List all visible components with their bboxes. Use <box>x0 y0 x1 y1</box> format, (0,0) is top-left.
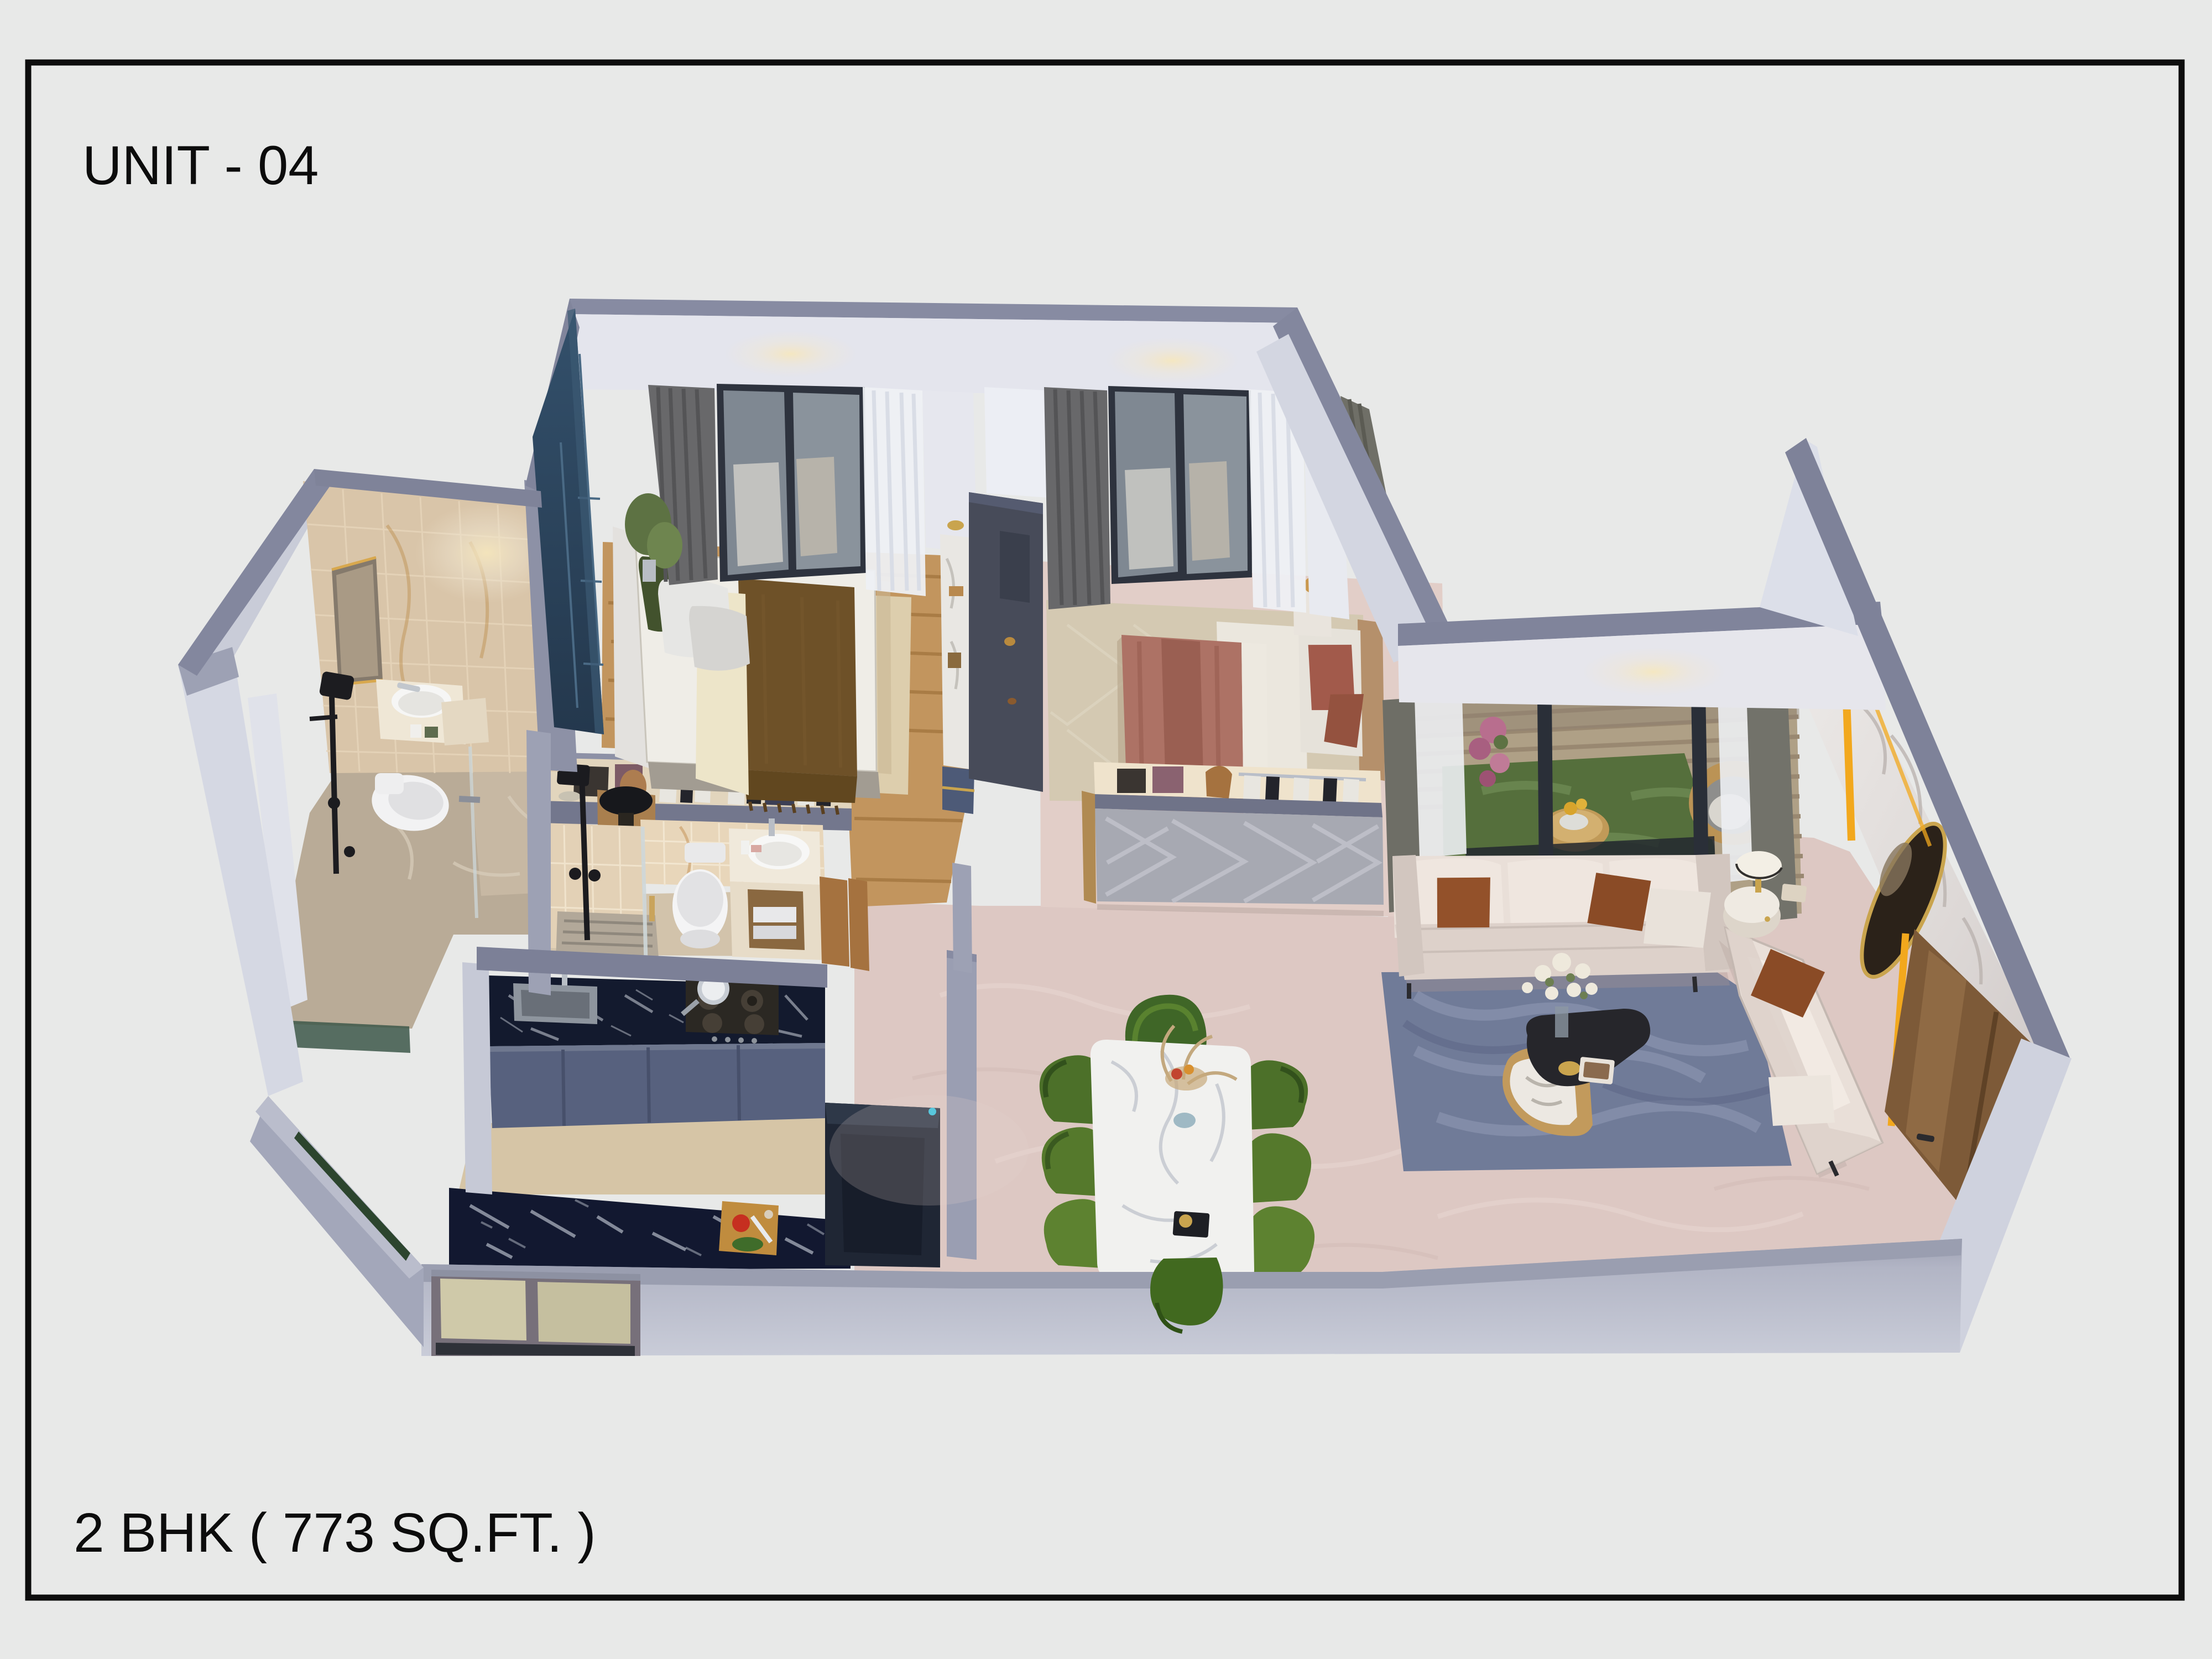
svg-text:UNIT - 04: UNIT - 04 <box>82 134 319 196</box>
svg-text:2 BHK ( 773 SQ.FT. ): 2 BHK ( 773 SQ.FT. ) <box>74 1502 596 1564</box>
